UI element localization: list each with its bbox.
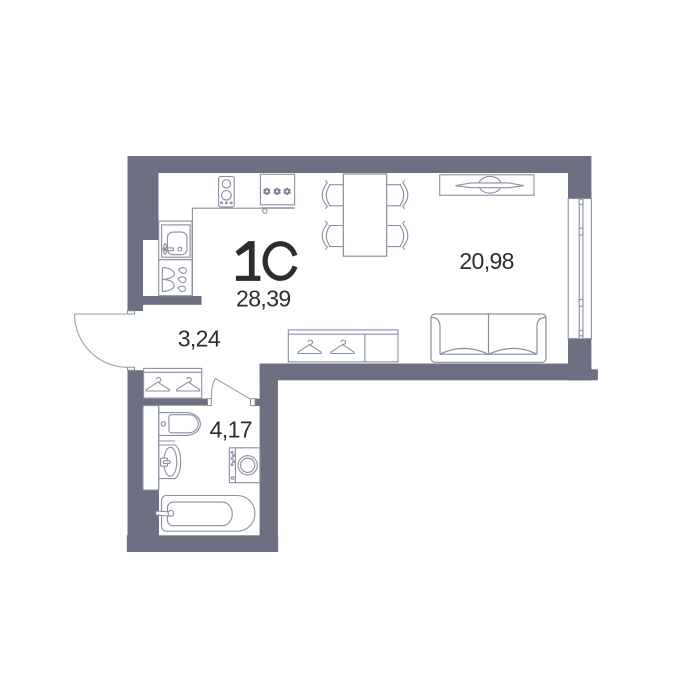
svg-text:20,98: 20,98 (459, 248, 514, 274)
svg-text:28,39: 28,39 (236, 286, 291, 312)
svg-text:4,17: 4,17 (210, 416, 252, 442)
svg-text:3,24: 3,24 (178, 325, 221, 351)
